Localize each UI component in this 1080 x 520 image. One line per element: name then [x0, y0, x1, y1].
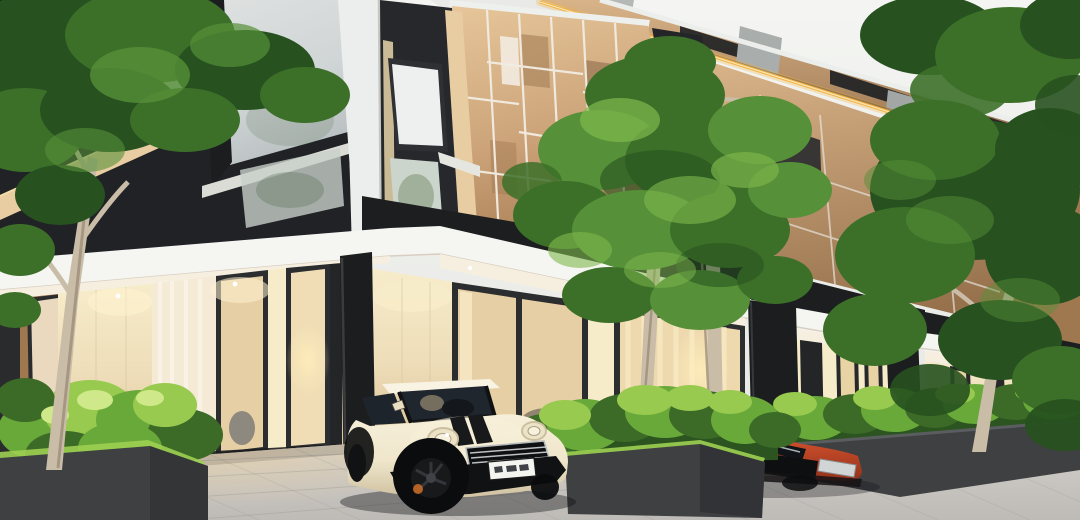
open-awning-sash-glass — [392, 64, 443, 146]
shelf-cubby — [520, 34, 550, 88]
downlight-wash — [88, 288, 152, 316]
hedge-clump — [749, 412, 801, 448]
headlight-glint — [445, 433, 449, 437]
foliage-glint — [90, 47, 190, 103]
foliage-glint — [624, 252, 696, 288]
interior-chair — [229, 411, 255, 445]
lamp-glow — [286, 324, 330, 396]
townhouse-render: Modern townhouse row at dusk — [0, 0, 1080, 520]
downlight — [233, 282, 238, 287]
foliage-glint — [45, 128, 125, 172]
foliage-glint — [980, 278, 1060, 322]
front-right-wheel — [531, 474, 559, 500]
foliage — [823, 294, 927, 366]
foliage-glint — [906, 196, 994, 244]
brake-caliper — [413, 484, 423, 494]
foliage — [502, 162, 562, 202]
foliage-glint — [190, 23, 270, 67]
downlight — [468, 266, 472, 270]
foliage — [260, 67, 350, 123]
downlight-wash — [210, 277, 270, 303]
downlight — [116, 294, 121, 299]
inner-corner-dark — [330, 263, 342, 448]
hedge-highlight — [617, 385, 673, 415]
foliage-glint — [580, 98, 660, 142]
hedge-highlight — [708, 390, 752, 414]
hedge-highlight — [539, 400, 591, 430]
wheel-hub — [426, 473, 436, 483]
coupe-front-wheel — [782, 475, 818, 491]
windshield-seat — [442, 399, 474, 417]
foliage-glint — [864, 160, 936, 200]
hedge-highlight — [666, 385, 714, 411]
bush-clump — [133, 383, 197, 427]
bush-glint — [77, 390, 113, 410]
foliage — [708, 96, 812, 164]
facade-pale-pane — [500, 36, 520, 86]
bush-glint — [136, 390, 164, 406]
foliage-glint — [711, 152, 779, 188]
rear-tire-sliver — [348, 444, 366, 482]
foliage-corner — [910, 62, 1010, 118]
foliage — [890, 364, 970, 416]
downlight-wash — [372, 280, 452, 312]
windshield-interior-blob — [420, 395, 444, 411]
foliage-glint — [548, 232, 612, 268]
foliage — [15, 165, 105, 225]
scene-canvas: Modern townhouse row at dusk — [0, 0, 1080, 520]
beige-pier — [268, 268, 286, 452]
pane-tree-reflection — [256, 172, 324, 208]
headlight-inner-ring — [528, 427, 540, 436]
left-planter — [0, 378, 223, 520]
